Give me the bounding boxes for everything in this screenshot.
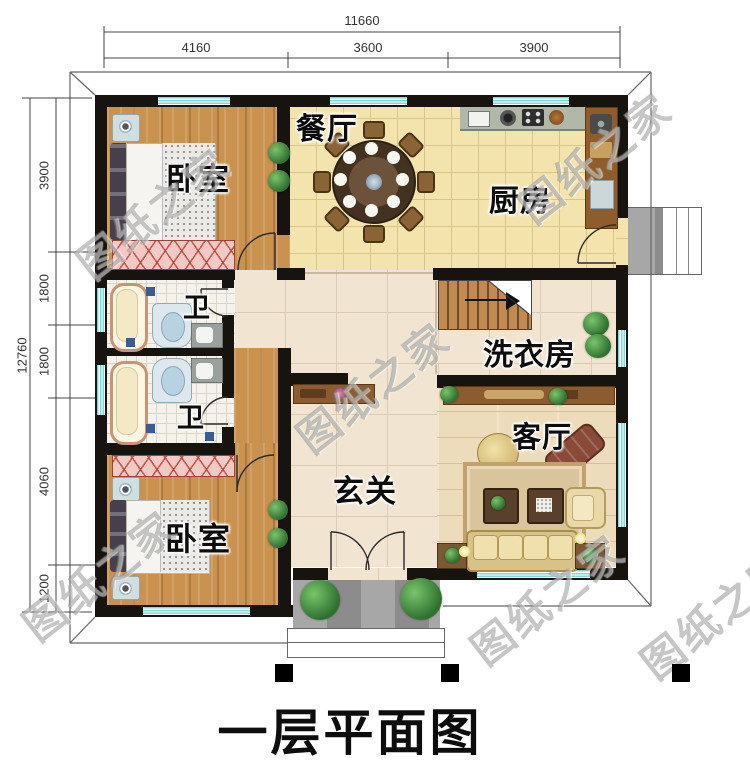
nightstand (112, 114, 140, 142)
room-label-dining: 餐厅 (296, 104, 358, 148)
appliance (468, 111, 490, 127)
plates (396, 173, 409, 186)
nightstand (112, 477, 140, 501)
column-marker (441, 664, 459, 682)
kitchen-counter (460, 107, 585, 131)
sofa-cushion (498, 535, 523, 560)
sink-bowl (161, 366, 185, 396)
room-label-living: 客厅 (512, 414, 572, 456)
bathtub (110, 361, 148, 445)
tub-basin (116, 367, 138, 435)
dining-chair (417, 171, 435, 193)
dim-top-seg2: 3600 (328, 40, 408, 55)
step-divider (288, 642, 444, 643)
step-divider (676, 208, 677, 274)
wall (277, 268, 305, 280)
plant (268, 500, 288, 520)
plant (549, 388, 567, 405)
plant (445, 548, 460, 563)
wall (433, 268, 616, 280)
dim-left-seg4: 4060 (37, 460, 52, 504)
sofa-cushion (523, 535, 548, 560)
dimension-lines-left (22, 98, 95, 612)
stair-break (489, 281, 531, 315)
toilet-lid (196, 327, 213, 343)
window (616, 330, 628, 367)
wall (222, 348, 234, 398)
plant (268, 142, 290, 164)
room-label-entry: 玄关 (333, 466, 397, 511)
cooking-pot (500, 110, 516, 126)
bush (400, 578, 442, 620)
stove (522, 109, 544, 126)
front-steps (287, 628, 445, 658)
plant (268, 528, 288, 548)
coffee-table (483, 488, 519, 524)
dining-chair (363, 121, 385, 139)
dim-top-seg1: 4160 (156, 40, 236, 55)
window (616, 423, 628, 527)
wall (278, 348, 291, 617)
page-title: 一层平面图 (0, 693, 700, 765)
bath-mat (205, 432, 214, 441)
dining-chair (363, 225, 385, 243)
wall (222, 427, 234, 443)
floor-plan-page: 11660 4160 3600 3900 12760 3900 1800 180… (0, 0, 750, 775)
wall (277, 95, 290, 235)
dim-left-seg1: 3900 (37, 154, 52, 198)
dim-left-seg2: 1800 (37, 267, 52, 311)
column-marker (672, 664, 690, 682)
window (95, 365, 107, 415)
sink-bowl (161, 312, 185, 342)
side-porch (620, 207, 702, 275)
armchair-cushion (572, 495, 594, 521)
sofa-cushion (473, 535, 498, 560)
dim-total-width: 11660 (322, 13, 402, 28)
table-centerpiece (366, 174, 382, 190)
table-runner (536, 498, 552, 512)
room-label-bath-top: 卫 (183, 286, 211, 325)
step-divider (688, 208, 689, 274)
bath-mat (126, 338, 135, 347)
window (143, 605, 250, 617)
toilet (191, 323, 223, 348)
coffee-table (527, 488, 564, 524)
console-table (443, 386, 615, 405)
entry-door-gap (328, 568, 407, 580)
dim-total-height: 12760 (15, 334, 30, 378)
window (95, 288, 107, 332)
column-marker (275, 664, 293, 682)
wardrobe (112, 455, 235, 477)
wall (95, 443, 235, 455)
bath-mat (146, 424, 155, 433)
flowers (491, 496, 505, 510)
plant (583, 312, 609, 336)
toilet (191, 358, 223, 383)
room-label-laundry: 洗衣房 (483, 330, 576, 374)
room-label-bath-bottom: 卫 (177, 396, 205, 435)
fruit-bowl (549, 110, 564, 125)
toilet-lid (196, 363, 213, 379)
window (493, 95, 569, 107)
wall (222, 280, 234, 288)
plant (268, 170, 290, 192)
tub-basin (116, 289, 138, 342)
plant (440, 386, 458, 403)
bath-mat (146, 287, 155, 296)
dining-chair (313, 171, 331, 193)
wall (222, 315, 234, 348)
bush (300, 580, 340, 620)
console-tray (484, 390, 544, 399)
window (158, 95, 230, 107)
dim-top-seg3: 3900 (494, 40, 574, 55)
staircase (438, 280, 532, 330)
dim-left-seg3: 1800 (37, 340, 52, 384)
plant (585, 334, 611, 358)
floor-lamp (459, 546, 470, 557)
